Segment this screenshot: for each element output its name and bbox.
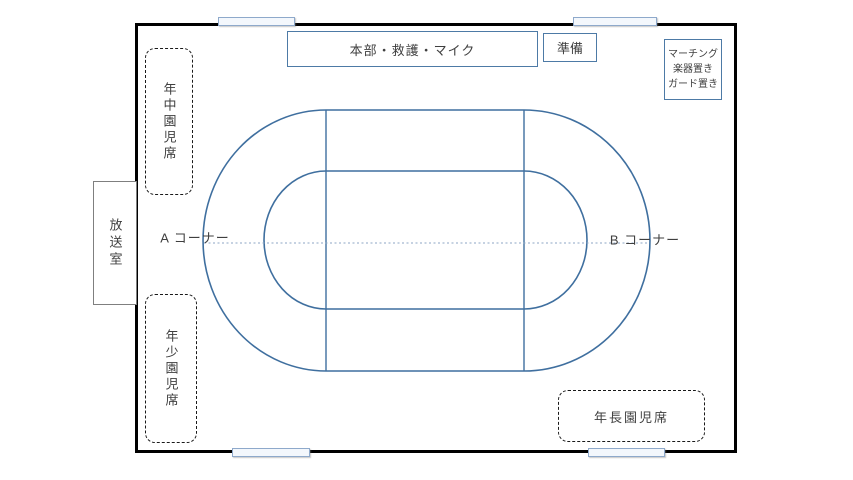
marching-storage-label-line1: マーチング	[668, 47, 718, 62]
hq-firstaid-mic-box: 本部・救護・マイク	[287, 31, 538, 67]
seats-nencho-label: 年長園児席	[594, 407, 669, 426]
seats-nencho-box: 年長園児席	[558, 390, 705, 442]
corner-a-label: A コーナー	[160, 228, 230, 247]
preparation-label: 準備	[557, 38, 583, 57]
broadcast-room-label: 放送室	[106, 218, 125, 269]
seats-nensho-label: 年少園児席	[162, 329, 181, 409]
corner-b-label: B コーナー	[610, 230, 680, 249]
gate-marker-top-left	[218, 17, 295, 26]
marching-storage-label-line3: ガード置き	[668, 77, 718, 92]
seats-nensho-box: 年少園児席	[145, 294, 197, 443]
marching-storage-label-line2: 楽器置き	[673, 62, 713, 77]
seats-nenchu-box: 年中園児席	[145, 48, 193, 195]
outer-track-oval	[203, 110, 650, 371]
marching-storage-box: マーチング 楽器置き ガード置き	[664, 39, 722, 100]
seats-nenchu-label: 年中園児席	[160, 82, 179, 162]
inner-track-oval	[264, 171, 587, 309]
broadcast-room-box: 放送室	[93, 181, 137, 305]
gate-marker-bottom-left	[232, 448, 310, 457]
hq-firstaid-mic-label: 本部・救護・マイク	[350, 40, 476, 59]
preparation-box: 準備	[543, 33, 597, 62]
gate-marker-top-right	[573, 17, 657, 26]
field-layout-diagram: 本部・救護・マイク 準備 マーチング 楽器置き ガード置き 放送室 年中園児席 …	[0, 0, 853, 480]
gate-marker-bottom-right	[588, 448, 665, 457]
